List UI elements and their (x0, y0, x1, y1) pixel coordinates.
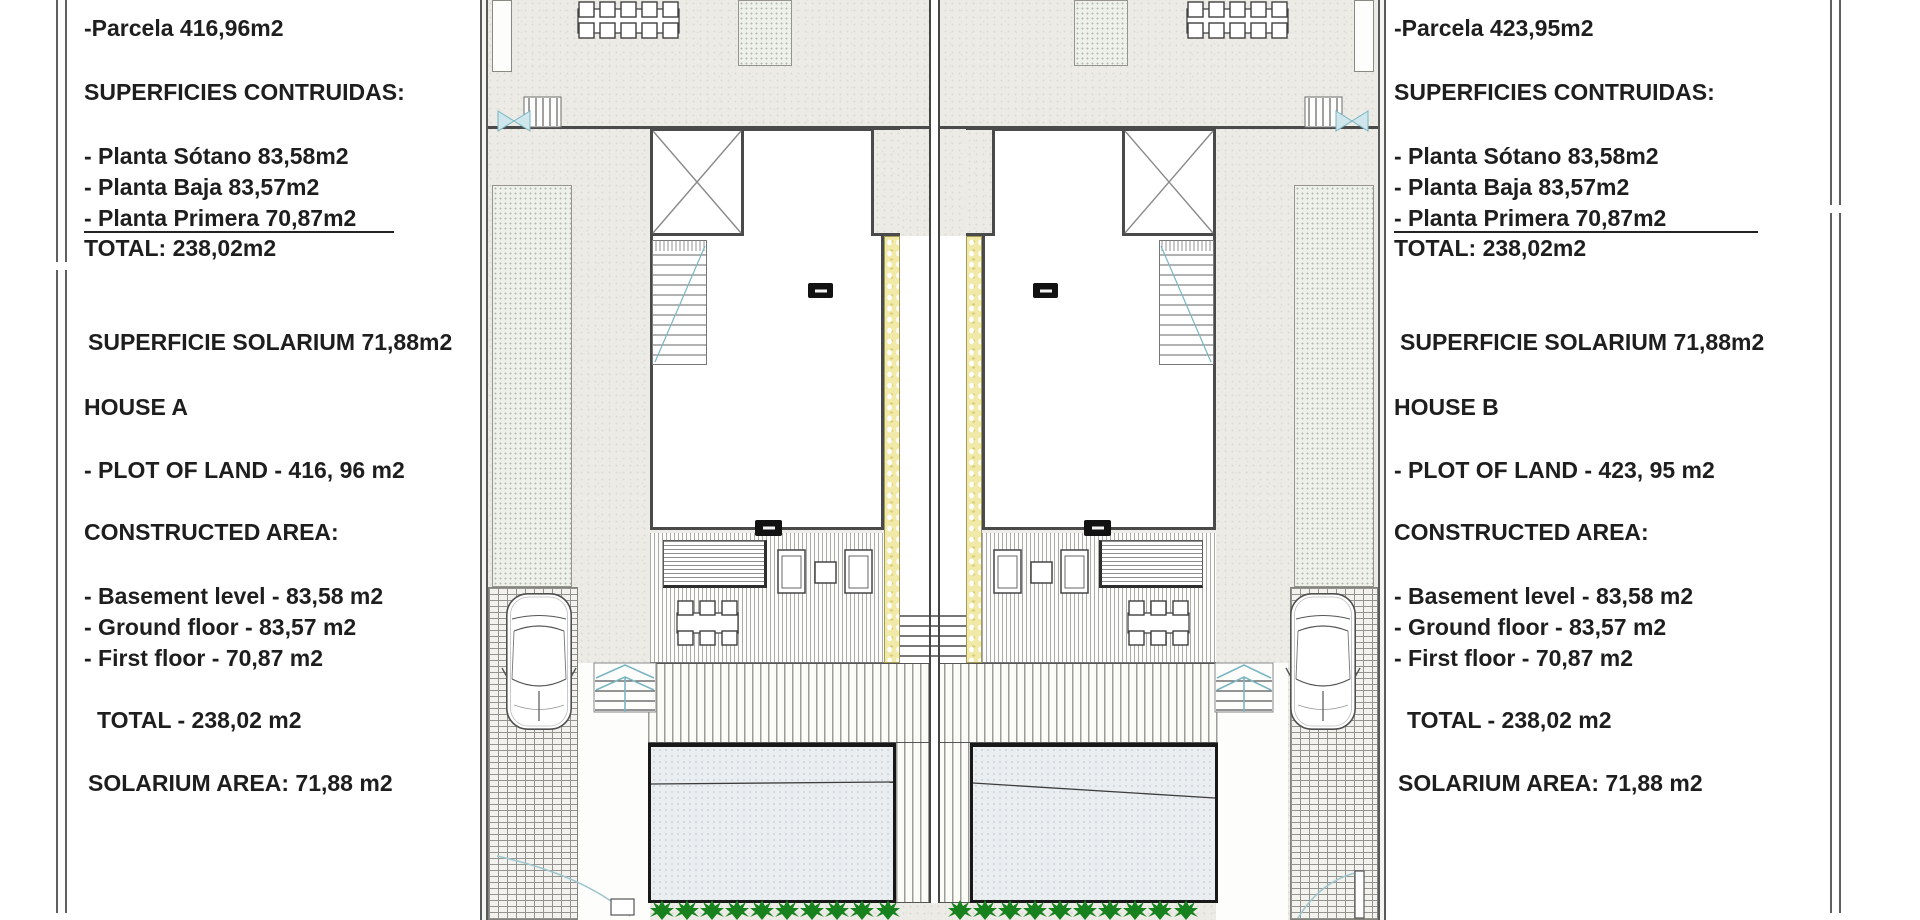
label-first-right: - First floor - 70,87 m2 (1394, 645, 1633, 671)
roof-label-chip-b (1033, 283, 1058, 298)
party-wall-yellow-a (884, 236, 900, 663)
side-path-left (578, 663, 650, 920)
label-house-a: HOUSE A (84, 394, 188, 420)
lot-division-wall (929, 0, 940, 903)
garden-bed-right (1294, 185, 1374, 587)
plot-boundary-left (480, 0, 488, 920)
label-total-en-right: TOTAL - 238,02 m2 (1407, 707, 1612, 733)
label-plot-left: - PLOT OF LAND - 416, 96 m2 (84, 457, 405, 483)
sheet-border-right-bottom (1830, 213, 1841, 913)
label-plot-right: - PLOT OF LAND - 423, 95 m2 (1394, 457, 1715, 483)
label-sotano-left: - Planta Sótano 83,58m2 (84, 143, 349, 169)
garden-bed-top-b (1074, 0, 1128, 66)
pool-house-a (648, 743, 896, 903)
label-solarium-en-left: SOLARIUM AREA: 71,88 m2 (88, 770, 393, 796)
skylight-box-house-b (1122, 128, 1216, 236)
label-primera-left: - Planta Primera 70,87m2 (84, 205, 394, 233)
garden-bed-top-a (738, 0, 792, 66)
sheet-border-left-top (56, 0, 67, 262)
label-total-es-right: TOTAL: 238,02m2 (1394, 235, 1586, 261)
label-total-es-left: TOTAL: 238,02m2 (84, 235, 276, 261)
driveway-right (1290, 587, 1378, 920)
pergola-house-a (663, 540, 767, 588)
roof-notch-house-a (871, 128, 900, 236)
floor-plan-sheet: -Parcela 416,96m2 SUPERFICIES CONTRUIDAS… (0, 0, 1920, 920)
label-ground-left: - Ground floor - 83,57 m2 (84, 614, 356, 640)
label-sotano-right: - Planta Sótano 83,58m2 (1394, 143, 1659, 169)
label-basement-left: - Basement level - 83,58 m2 (84, 583, 383, 609)
label-constructed-right: CONSTRUCTED AREA: (1394, 519, 1649, 545)
pool-house-b (970, 743, 1218, 903)
sheet-border-left-bottom (56, 270, 67, 913)
sheet-border-right-top (1830, 0, 1841, 205)
party-wall-yellow-b (966, 236, 982, 663)
label-parcela-right: -Parcela 423,95m2 (1394, 15, 1594, 41)
label-superficies-right: SUPERFICIES CONTRUIDAS: (1394, 79, 1715, 105)
label-constructed-left: CONSTRUCTED AREA: (84, 519, 339, 545)
deck-label-chip-b (1084, 520, 1111, 536)
label-solarium-es-right: SUPERFICIE SOLARIUM 71,88m2 (1400, 329, 1764, 355)
wall-strip-top-right (1354, 0, 1374, 72)
label-parcela-left: -Parcela 416,96m2 (84, 15, 284, 41)
skylight-box-house-a (650, 128, 744, 236)
garden-bed-left (492, 185, 572, 587)
plot-boundary-right (1378, 0, 1386, 920)
driveway-left (488, 587, 578, 920)
label-basement-right: - Basement level - 83,58 m2 (1394, 583, 1693, 609)
label-total-en-left: TOTAL - 238,02 m2 (97, 707, 302, 733)
pergola-house-b (1099, 540, 1203, 588)
deck-label-chip-a (755, 520, 782, 536)
label-baja-left: - Planta Baja 83,57m2 (84, 174, 319, 200)
side-path-right (1216, 663, 1288, 920)
label-solarium-en-right: SOLARIUM AREA: 71,88 m2 (1398, 770, 1703, 796)
label-primera-right: - Planta Primera 70,87m2 (1394, 205, 1758, 233)
wall-strip-top-left (492, 0, 512, 72)
label-house-b: HOUSE B (1394, 394, 1499, 420)
label-first-left: - First floor - 70,87 m2 (84, 645, 323, 671)
label-superficies-left: SUPERFICIES CONTRUIDAS: (84, 79, 405, 105)
label-solarium-es-left: SUPERFICIE SOLARIUM 71,88m2 (88, 329, 452, 355)
label-ground-right: - Ground floor - 83,57 m2 (1394, 614, 1666, 640)
roof-label-chip-a (808, 283, 833, 298)
roof-notch-house-b (966, 128, 995, 236)
label-baja-right: - Planta Baja 83,57m2 (1394, 174, 1629, 200)
